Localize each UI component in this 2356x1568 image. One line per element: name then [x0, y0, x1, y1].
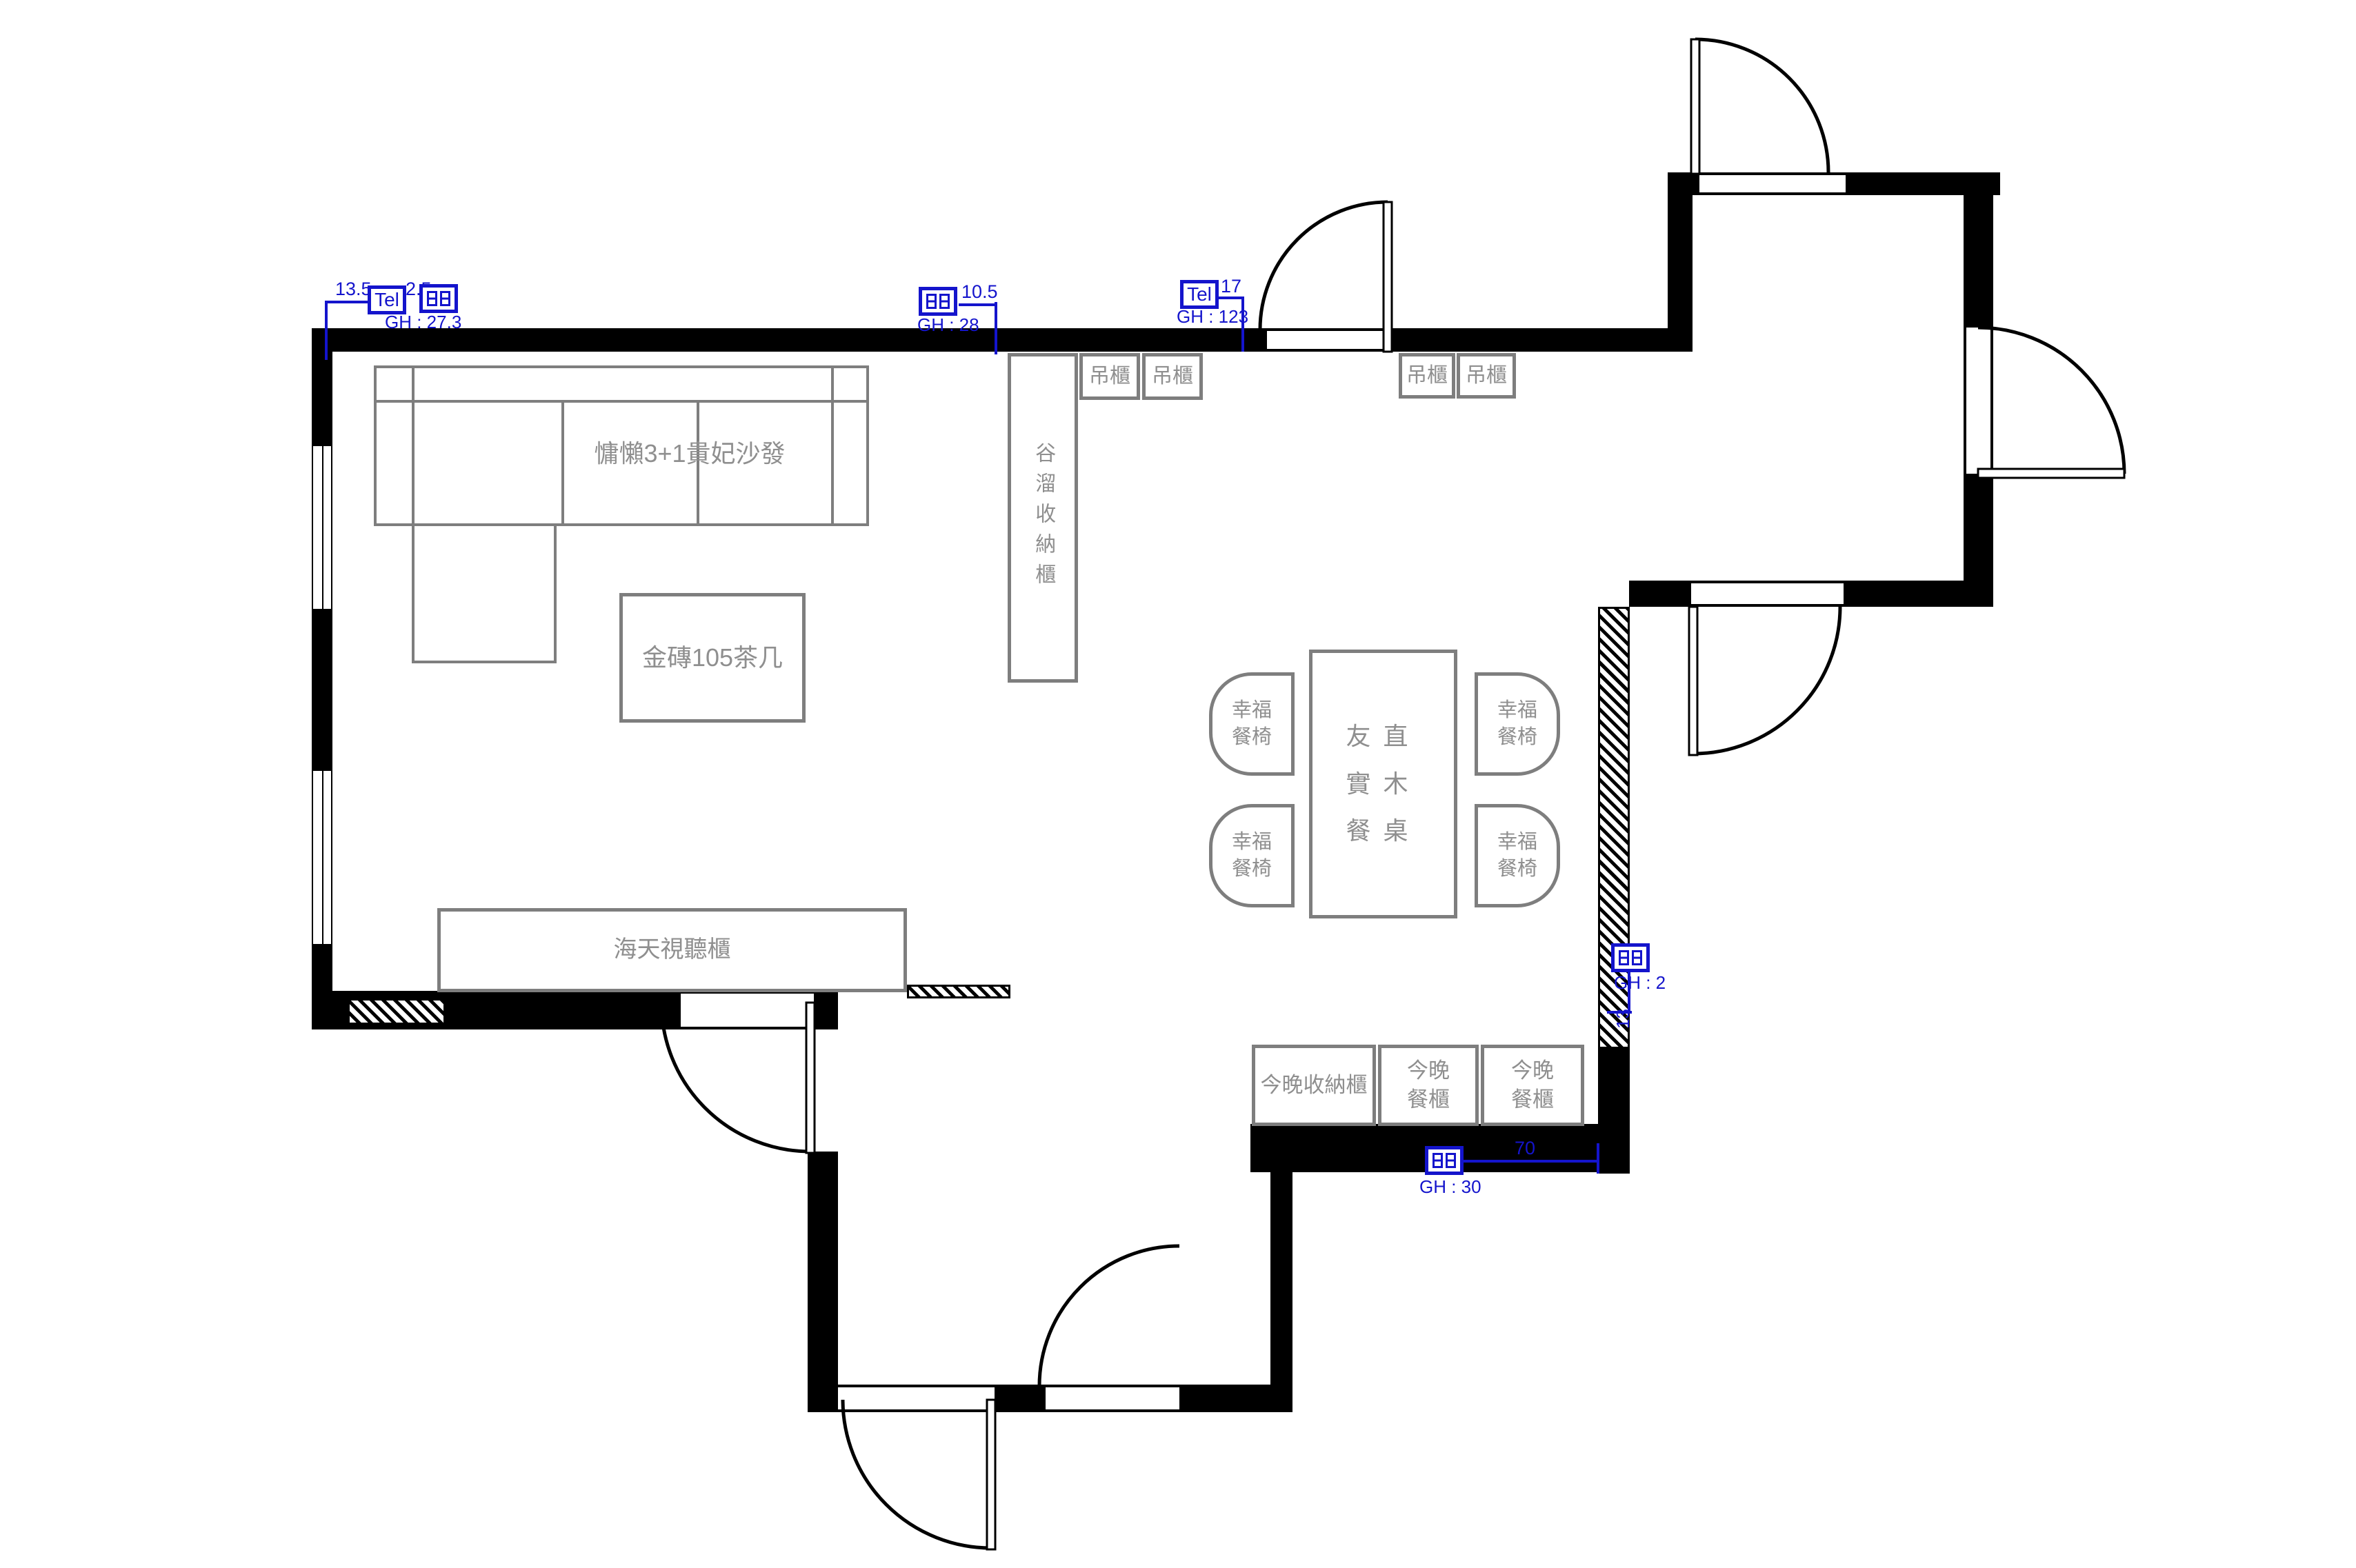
- coffee-table: 金磚105茶几: [619, 593, 806, 723]
- wall-top-right: [1389, 328, 1668, 352]
- door-swing-layer: [0, 0, 2356, 1568]
- hanging-cabinet-label: 吊櫃: [1089, 363, 1130, 391]
- wall-left-upper: [312, 343, 332, 445]
- dim-line: [959, 303, 997, 306]
- hanging-cabinet-2: 吊櫃: [1142, 353, 1203, 400]
- door-arc-right: [1978, 328, 2124, 474]
- door-opening-bottom-right: [1046, 1385, 1179, 1412]
- wall-step-vertical: [1270, 1172, 1292, 1412]
- outlet-cell-icon: [1446, 1153, 1456, 1168]
- door-arc-kitchen: [1693, 607, 1840, 754]
- gh-28: GH : 28: [917, 314, 979, 336]
- door-opening-bottom-left: [838, 1385, 995, 1412]
- chair-label-line: 餐椅: [1232, 724, 1272, 751]
- hatched-sill-left: [348, 998, 446, 1025]
- outlet-icon: [1425, 1146, 1464, 1175]
- dim-line: [1464, 1160, 1599, 1163]
- dining-table-label-line: 餐桌: [1346, 807, 1420, 854]
- hatched-sill-right: [907, 985, 1010, 998]
- tv-cabinet-label: 海天視聽櫃: [614, 934, 731, 966]
- gh-123: GH : 123: [1177, 306, 1248, 328]
- door-leaf-bottom-left: [987, 1400, 995, 1549]
- dining-chair-right-top: 幸福 餐椅: [1475, 672, 1560, 776]
- door-opening-entry: [1699, 172, 1846, 195]
- chair-label-line: 餐椅: [1497, 856, 1537, 883]
- outlet-cell-icon: [1619, 950, 1629, 965]
- window-left-1: [312, 445, 332, 610]
- door-opening-top: [1267, 328, 1389, 352]
- bottom-dining-cabinet-label-line: 餐櫃: [1407, 1085, 1450, 1114]
- door-leaf-right: [1978, 469, 2124, 478]
- hanging-cabinet-label: 吊櫃: [1406, 362, 1448, 390]
- dining-chair-left-bottom: 幸福 餐椅: [1209, 804, 1295, 907]
- window-mullion: [322, 446, 323, 609]
- wall-left-middle: [312, 610, 332, 770]
- outlet-icon: [919, 287, 957, 316]
- bottom-dining-cabinet-label-line: 今晚: [1511, 1056, 1554, 1085]
- dining-table: 友直 實木 餐桌: [1309, 650, 1457, 918]
- chair-label-line: 幸福: [1497, 829, 1537, 856]
- door-leaf-kitchen: [1689, 607, 1697, 755]
- chair-label-line: 幸福: [1232, 829, 1272, 856]
- window-left-2: [312, 770, 332, 945]
- dining-table-label-line: 實木: [1346, 761, 1420, 807]
- sofa-left-arm-line: [412, 368, 415, 523]
- hanging-cabinet-4: 吊櫃: [1457, 353, 1516, 399]
- gh-27-3: GH : 27.3: [385, 312, 461, 333]
- wall-bottom-c: [1179, 1385, 1292, 1412]
- gh-2: GH : 2: [1614, 972, 1666, 994]
- door-opening-tv: [681, 991, 814, 1029]
- window-mullion: [322, 771, 323, 944]
- tel-label: Tel: [375, 289, 399, 311]
- door-arc-bottom-left: [843, 1400, 991, 1548]
- hanging-cabinet-label: 吊櫃: [1152, 363, 1193, 391]
- leader-line: [995, 302, 997, 354]
- bottom-dining-cabinet-1: 今晚 餐櫃: [1378, 1045, 1479, 1126]
- wall-entry-left: [1668, 172, 1693, 352]
- sofa-right-arm-line: [831, 368, 834, 523]
- sofa-chaise: [412, 526, 557, 663]
- hanging-cabinet-3: 吊櫃: [1399, 353, 1455, 399]
- wall-entry-right-upper: [1964, 195, 1993, 328]
- door-leaf-entry: [1691, 39, 1699, 174]
- outlet-cell-icon: [1632, 950, 1642, 965]
- floor-plan: 慵懶3+1貴妃沙發 金磚105茶几 海天視聽櫃 谷溜收納櫃 吊櫃 吊櫃 吊櫃 吊…: [0, 0, 2356, 1568]
- sofa-back-line: [377, 400, 866, 403]
- outlet-cell-icon: [427, 291, 437, 306]
- door-opening-kitchen: [1691, 581, 1844, 607]
- sofa-label: 慵懶3+1貴妃沙發: [559, 433, 821, 474]
- dim-13: 13: [1613, 1009, 1634, 1029]
- chair-label-line: 餐椅: [1497, 724, 1537, 751]
- door-arc-bottom-right: [1039, 1246, 1179, 1386]
- sofa-label-text: 慵懶3+1貴妃沙發: [594, 437, 785, 471]
- door-opening-right: [1964, 328, 1993, 474]
- hanging-cabinet-1: 吊櫃: [1079, 353, 1140, 400]
- chair-label-line: 幸福: [1497, 697, 1537, 724]
- door-arc-entry: [1695, 39, 1828, 172]
- bottom-storage-label: 今晚收納櫃: [1261, 1071, 1368, 1100]
- tel-box-1: Tel: [368, 285, 406, 314]
- dim-10-5: 10.5: [961, 281, 998, 303]
- bottom-storage-cabinet: 今晚收納櫃: [1252, 1045, 1376, 1126]
- gh-30: GH : 30: [1419, 1176, 1481, 1198]
- chair-label-line: 幸福: [1232, 697, 1272, 724]
- storage-tower-label: 谷溜收納櫃: [1029, 442, 1057, 594]
- outlet-cell-icon: [1432, 1153, 1443, 1168]
- tv-cabinet: 海天視聽櫃: [437, 908, 907, 992]
- wall-tv-right-stub: [814, 991, 838, 1029]
- dim-70: 70: [1515, 1138, 1535, 1159]
- wall-lower-left-vertical: [808, 1152, 838, 1389]
- outlet-cell-icon: [440, 291, 450, 306]
- leader-line: [1597, 1143, 1599, 1174]
- dining-chair-left-top: 幸福 餐椅: [1209, 672, 1295, 776]
- dim-17: 17: [1221, 276, 1241, 297]
- dining-table-label-line: 友直: [1346, 713, 1420, 760]
- chair-label-line: 餐椅: [1232, 856, 1272, 883]
- outlet-cell-icon: [926, 294, 937, 309]
- outlet-icon: [419, 284, 458, 313]
- dim-line: [326, 301, 370, 303]
- outlet-icon: [1611, 943, 1650, 972]
- coffee-table-label: 金磚105茶几: [642, 641, 783, 675]
- tel-label: Tel: [1187, 283, 1212, 305]
- outlet-cell-icon: [939, 294, 950, 309]
- bottom-dining-cabinet-label-line: 餐櫃: [1511, 1085, 1554, 1114]
- dim-13-5: 13.5: [335, 279, 372, 300]
- dining-chair-right-bottom: 幸福 餐椅: [1475, 804, 1560, 907]
- storage-tower: 谷溜收納櫃: [1008, 353, 1078, 683]
- tel-box-2: Tel: [1180, 280, 1219, 309]
- bottom-dining-cabinet-2: 今晚 餐櫃: [1481, 1045, 1584, 1126]
- bottom-dining-cabinet-label-line: 今晚: [1407, 1056, 1450, 1085]
- door-arc-top: [1260, 202, 1388, 330]
- hanging-cabinet-label: 吊櫃: [1466, 362, 1507, 390]
- leader-line: [325, 301, 328, 360]
- wall-bottom-b: [995, 1385, 1046, 1412]
